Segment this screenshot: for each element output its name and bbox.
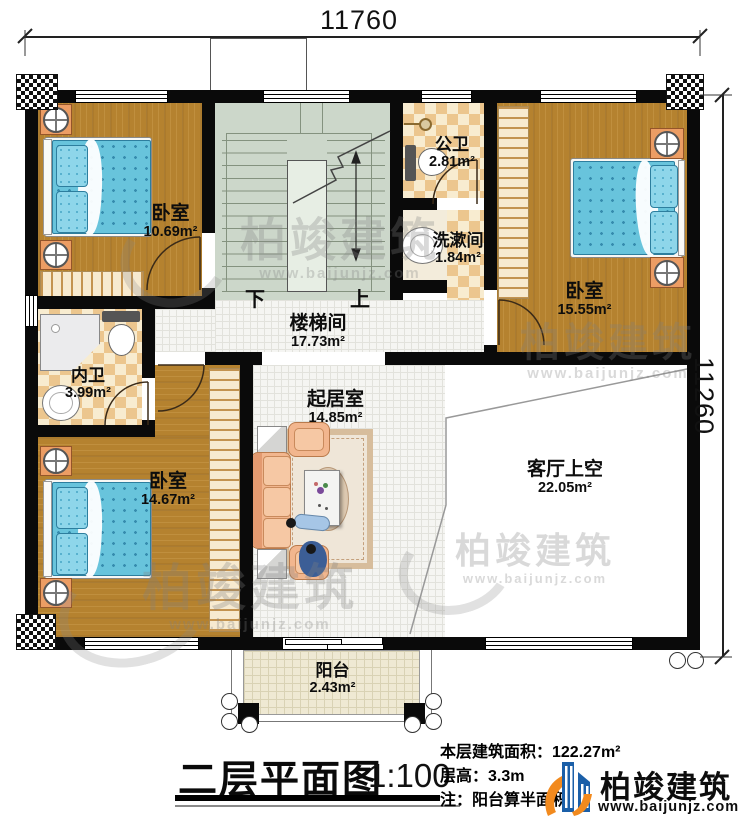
room-label-stairwell: 楼梯间 17.73m² bbox=[268, 313, 368, 351]
shower-arm-icon bbox=[404, 123, 420, 125]
room-label-living-room: 起居室 14.85m² bbox=[288, 389, 383, 427]
wall-washroom-bottom bbox=[403, 280, 447, 293]
room-label-bedroom-bl: 卧室 14.67m² bbox=[118, 471, 218, 509]
balcony-post-left-circle-3 bbox=[241, 716, 258, 733]
window-bedroom-tl bbox=[75, 90, 168, 103]
side-table bbox=[257, 549, 287, 579]
lamp-icon bbox=[654, 260, 680, 286]
dimension-width-label: 11760 bbox=[320, 5, 398, 36]
window-bedroom-tr bbox=[540, 90, 637, 103]
balcony-post-right-circle-2 bbox=[425, 713, 442, 730]
bed-bl-pillow-1 bbox=[56, 487, 88, 529]
sofa bbox=[251, 452, 291, 549]
person-head bbox=[286, 518, 296, 528]
stair-center-divider bbox=[287, 160, 327, 292]
lamp-icon bbox=[654, 131, 680, 157]
wall-left bbox=[25, 90, 38, 650]
balcony-post-left-circle-1 bbox=[221, 693, 238, 710]
lamp-icon bbox=[43, 107, 69, 133]
room-label-washroom: 洗漱间 1.84m² bbox=[413, 231, 503, 266]
shower-drain-icon bbox=[51, 324, 60, 333]
window-bedroom-bl bbox=[84, 637, 199, 650]
balcony-post-right-circle-1 bbox=[425, 693, 442, 710]
bed-tr-pillow-2 bbox=[650, 211, 678, 254]
floor-plan: 11760 11260 bbox=[0, 0, 750, 827]
dimension-width-line bbox=[25, 36, 700, 38]
drawing-scale: 1:100 bbox=[368, 757, 451, 795]
sofa-backrest bbox=[252, 453, 262, 548]
stair-treads-right bbox=[327, 140, 385, 292]
balcony-sliding-door bbox=[282, 637, 383, 650]
wall-private-bath-bottom bbox=[38, 425, 155, 437]
flower-leaf-icon bbox=[323, 483, 328, 488]
room-label-public-bath: 公卫 2.81m² bbox=[412, 135, 492, 170]
floor-hall-right bbox=[390, 300, 484, 352]
dimension-height-label: 11260 bbox=[688, 357, 719, 435]
floor-height-note: 层高：3.3m bbox=[440, 762, 524, 786]
room-label-balcony: 阳台 2.43m² bbox=[290, 661, 375, 696]
stair-up-label: 上 bbox=[350, 283, 370, 312]
hatch-top-right bbox=[666, 74, 704, 110]
wall-bedroom-tl-bottom bbox=[38, 296, 215, 309]
room-label-void: 客厅上空 22.05m² bbox=[505, 459, 625, 497]
bed-tr-headboard bbox=[678, 160, 685, 256]
balcony-post-right-circle-4 bbox=[404, 716, 421, 733]
title-underline-thin bbox=[175, 805, 460, 807]
closet-bedroom-tl bbox=[40, 271, 144, 297]
wall-bedroom-bl-right bbox=[240, 365, 253, 637]
armchair bbox=[288, 422, 330, 457]
hatch-top-left bbox=[16, 74, 58, 110]
brand-logo-icon bbox=[540, 754, 596, 820]
flower-leaf-icon bbox=[314, 482, 318, 486]
nightstand bbox=[40, 240, 72, 270]
lamp-icon bbox=[43, 242, 69, 268]
stair-treads-left bbox=[222, 140, 287, 292]
wall-hall-bottom-right bbox=[385, 352, 700, 365]
dimension-height-line bbox=[722, 95, 724, 657]
porch-column-1 bbox=[669, 652, 686, 669]
wall-hall-bottom-left bbox=[205, 352, 262, 365]
floor-hall-left bbox=[155, 309, 215, 352]
person-head bbox=[306, 544, 316, 554]
wall-bedroom-tr-left-b bbox=[484, 345, 497, 365]
closet-bedroom-tr bbox=[498, 106, 529, 299]
bed-tr-pillow-1 bbox=[650, 165, 678, 208]
side-table bbox=[257, 426, 287, 455]
bed-tl-pillow-1 bbox=[56, 145, 88, 187]
lamp-icon bbox=[43, 448, 69, 474]
bed-tl-pillow-2 bbox=[56, 191, 88, 233]
bed-tl-headboard bbox=[43, 139, 52, 235]
bed-bl-headboard bbox=[43, 481, 52, 577]
stair-down-label: 下 bbox=[245, 283, 265, 312]
room-label-private-bath: 内卫 3.99m² bbox=[48, 366, 128, 401]
nightstand bbox=[650, 128, 684, 159]
stair-guide-line-1 bbox=[300, 103, 301, 133]
lamp-icon bbox=[43, 580, 69, 606]
brand-website: www.baijunjz.com bbox=[598, 799, 739, 815]
wall-bath-divider bbox=[403, 198, 437, 210]
stair-guide-line-2 bbox=[322, 103, 323, 133]
nightstand bbox=[40, 446, 72, 476]
table-dot bbox=[318, 504, 321, 507]
balcony-post-left-circle-2 bbox=[221, 713, 238, 730]
window-public-bath bbox=[421, 90, 472, 103]
hatch-bottom-left bbox=[16, 614, 56, 650]
window-stairwell bbox=[263, 90, 350, 103]
shower-head-icon bbox=[419, 118, 432, 131]
sofa-cushion bbox=[263, 487, 291, 517]
table-dot bbox=[325, 507, 328, 510]
nightstand bbox=[40, 578, 72, 608]
floor-void bbox=[445, 365, 687, 637]
toilet-tank-icon bbox=[102, 311, 140, 322]
nightstand bbox=[650, 257, 684, 288]
room-label-bedroom-tr: 卧室 15.55m² bbox=[537, 281, 632, 319]
roof-bumpout-outline bbox=[210, 38, 307, 91]
porch-column-2 bbox=[687, 652, 704, 669]
wall-stairwell-right bbox=[390, 103, 403, 300]
wall-private-bath-right-a bbox=[142, 309, 155, 378]
flower-icon bbox=[317, 487, 324, 494]
window-void bbox=[485, 637, 633, 650]
bed-bl-pillow-2 bbox=[56, 533, 88, 575]
title-underline-thick bbox=[175, 795, 440, 801]
room-label-bedroom-tl: 卧室 10.69m² bbox=[118, 203, 223, 241]
sofa-cushion bbox=[263, 456, 291, 486]
window-private-bath bbox=[25, 295, 38, 327]
